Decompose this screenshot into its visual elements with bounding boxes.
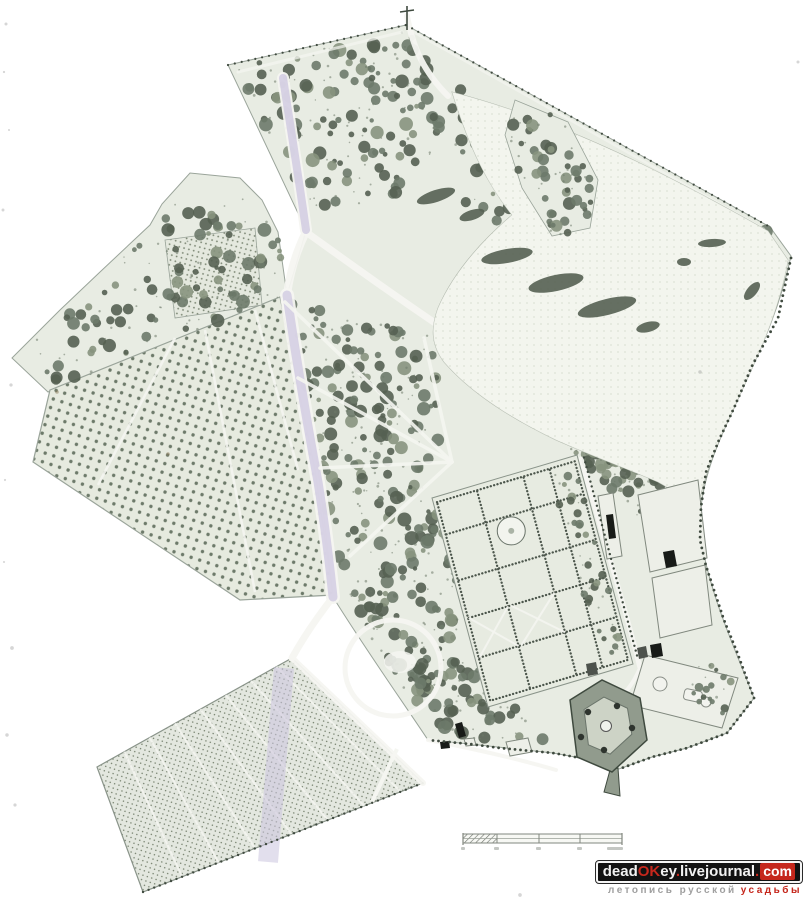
building-footprint [637, 646, 648, 659]
scale-bar-illegible-label [461, 847, 465, 850]
watermark-com-badge: com [760, 863, 795, 880]
nursery-field [97, 658, 424, 893]
scale-bar-illegible-label [607, 847, 623, 850]
building-footprint [586, 662, 598, 676]
watermark-text-livejournal: livejournal [680, 863, 755, 880]
pentagon-farm-court [570, 680, 647, 796]
scale-bar-illegible-label [536, 847, 541, 850]
watermark-text-dead: dead [603, 863, 638, 880]
estate-plan-page: deadOKey.livejournal.com летопись русско… [0, 0, 805, 900]
watermark-subtitle-red: усадьбы [741, 885, 802, 896]
watermark-subtitle-gray: летопись русской [608, 885, 737, 896]
scale-bar [461, 833, 623, 850]
estate-plan-map [0, 0, 805, 900]
watermark-dot-2: . [755, 863, 759, 880]
scale-bar-illegible-label [577, 847, 582, 850]
estate-plan-svg [0, 0, 805, 900]
watermark-text-ey: ey [660, 863, 676, 880]
watermark: deadOKey.livejournal.com летопись русско… [596, 861, 802, 896]
watermark-text-ok: OK [638, 863, 661, 880]
scale-bar-illegible-label [494, 847, 499, 850]
watermark-banner: deadOKey.livejournal.com [596, 861, 802, 883]
courtyard-plot [652, 565, 712, 638]
watermark-subtitle: летопись русскойусадьбы [596, 886, 802, 896]
building-footprint [650, 643, 663, 658]
